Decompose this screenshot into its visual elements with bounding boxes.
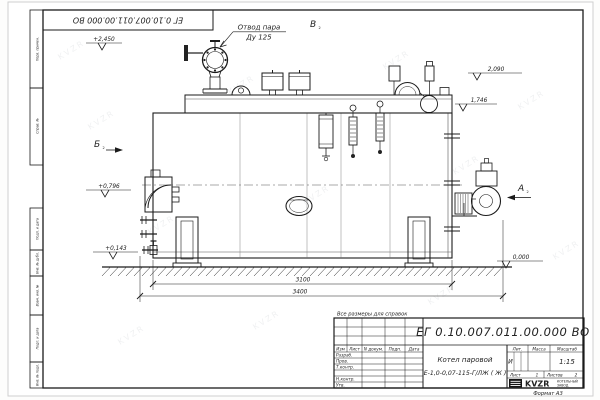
rev-header-data: Дата bbox=[408, 347, 420, 352]
rev-header-list: Лист bbox=[348, 347, 360, 352]
sig-prov: Пров. bbox=[336, 359, 348, 364]
view-v-letter: В bbox=[310, 20, 316, 30]
dim-overall-length-value: 3400 bbox=[293, 290, 308, 296]
level-front-low-value: +0,143 bbox=[105, 246, 127, 252]
view-a-letter: А bbox=[517, 184, 524, 194]
margin-label-perv-primen: Перв. примен. bbox=[36, 37, 40, 61]
level-rear-mid-value: 1,746 bbox=[471, 98, 488, 104]
view-a-subscript: 2 bbox=[527, 190, 529, 194]
view-b-subscript: 2 bbox=[103, 146, 105, 150]
level-front-mid-value: +0,796 bbox=[98, 184, 120, 190]
view-v-subscript: 2 bbox=[319, 26, 321, 30]
level-valve-top-value: +2,450 bbox=[93, 37, 115, 43]
sheet-label: Лист bbox=[509, 372, 521, 377]
massa-label: Масса bbox=[532, 347, 546, 352]
steam-outlet-label-line1: Отвод пара bbox=[238, 24, 281, 32]
reference-note: Все размеры для справок bbox=[337, 312, 408, 318]
sheet-value: 1 bbox=[536, 372, 539, 377]
sheets-value: 2 bbox=[575, 372, 578, 377]
sig-utv: Утв. bbox=[336, 383, 345, 388]
level-rear-top-value: 2,090 bbox=[488, 67, 505, 73]
company-name-line2: ЗАВОД bbox=[557, 383, 569, 387]
rev-header-izm: Изм bbox=[336, 347, 345, 352]
lit-value: И bbox=[508, 359, 513, 366]
margin-label-inv-dubl: Инв. № дубл. bbox=[36, 252, 40, 274]
sig-razrab: Разраб. bbox=[336, 353, 352, 358]
company-logo-text: KVZR bbox=[525, 379, 549, 388]
rev-header-ndok: N докум. bbox=[364, 347, 383, 352]
dim-shell-length-value: 3100 bbox=[296, 278, 311, 284]
margin-label-podp-data-2: Подп. и дата bbox=[36, 328, 40, 350]
lit-label: Лит. bbox=[512, 347, 523, 352]
level-ground-value: 0,000 bbox=[513, 255, 530, 261]
steam-outlet-label-line2: Ду 125 bbox=[245, 34, 272, 42]
title-doc-number: ЕГ 0.10.007.011.00.000 ВО bbox=[416, 325, 590, 339]
margin-label-inv-podl: Инв. № подл. bbox=[36, 364, 40, 386]
margin-label-podp-data-1: Подп. и дата bbox=[36, 218, 40, 240]
format-label: Формат А3 bbox=[533, 391, 563, 397]
valve-handwheel-icon bbox=[184, 45, 188, 61]
company-row: KVZR КОТЕЛЬНЫЙ ЗАВОД bbox=[509, 378, 579, 388]
margin-label-sprav-no: Справ. № bbox=[36, 118, 40, 134]
margin-label-vzam-inv: Взам. инв. № bbox=[36, 284, 40, 306]
sig-nkontr: Н.контр. bbox=[336, 377, 355, 382]
view-b-letter: Б bbox=[94, 140, 100, 150]
scale-label: Масштаб bbox=[557, 347, 577, 352]
sheets-label: Листов bbox=[546, 372, 563, 377]
boiler-drawing-svg: KVZR KVZR KVZR KVZR KVZR KVZR KVZR KVZR … bbox=[0, 0, 600, 400]
sig-tkontr: Т.контр. bbox=[336, 365, 354, 370]
top-stamp-doc-number: ЕГ 0.10.007.011.00.000 ВО bbox=[73, 16, 183, 25]
drawing-sheet: KVZR KVZR KVZR KVZR KVZR KVZR KVZR KVZR … bbox=[0, 0, 600, 400]
rev-header-podp: Подп. bbox=[389, 347, 402, 352]
product-name-line2: Е-1,0-0,07-115-Г/ЛЖ ( Ж ) bbox=[424, 370, 507, 377]
product-name-line1: Котел паровой bbox=[438, 356, 493, 364]
scale-value: 1:15 bbox=[559, 358, 575, 366]
